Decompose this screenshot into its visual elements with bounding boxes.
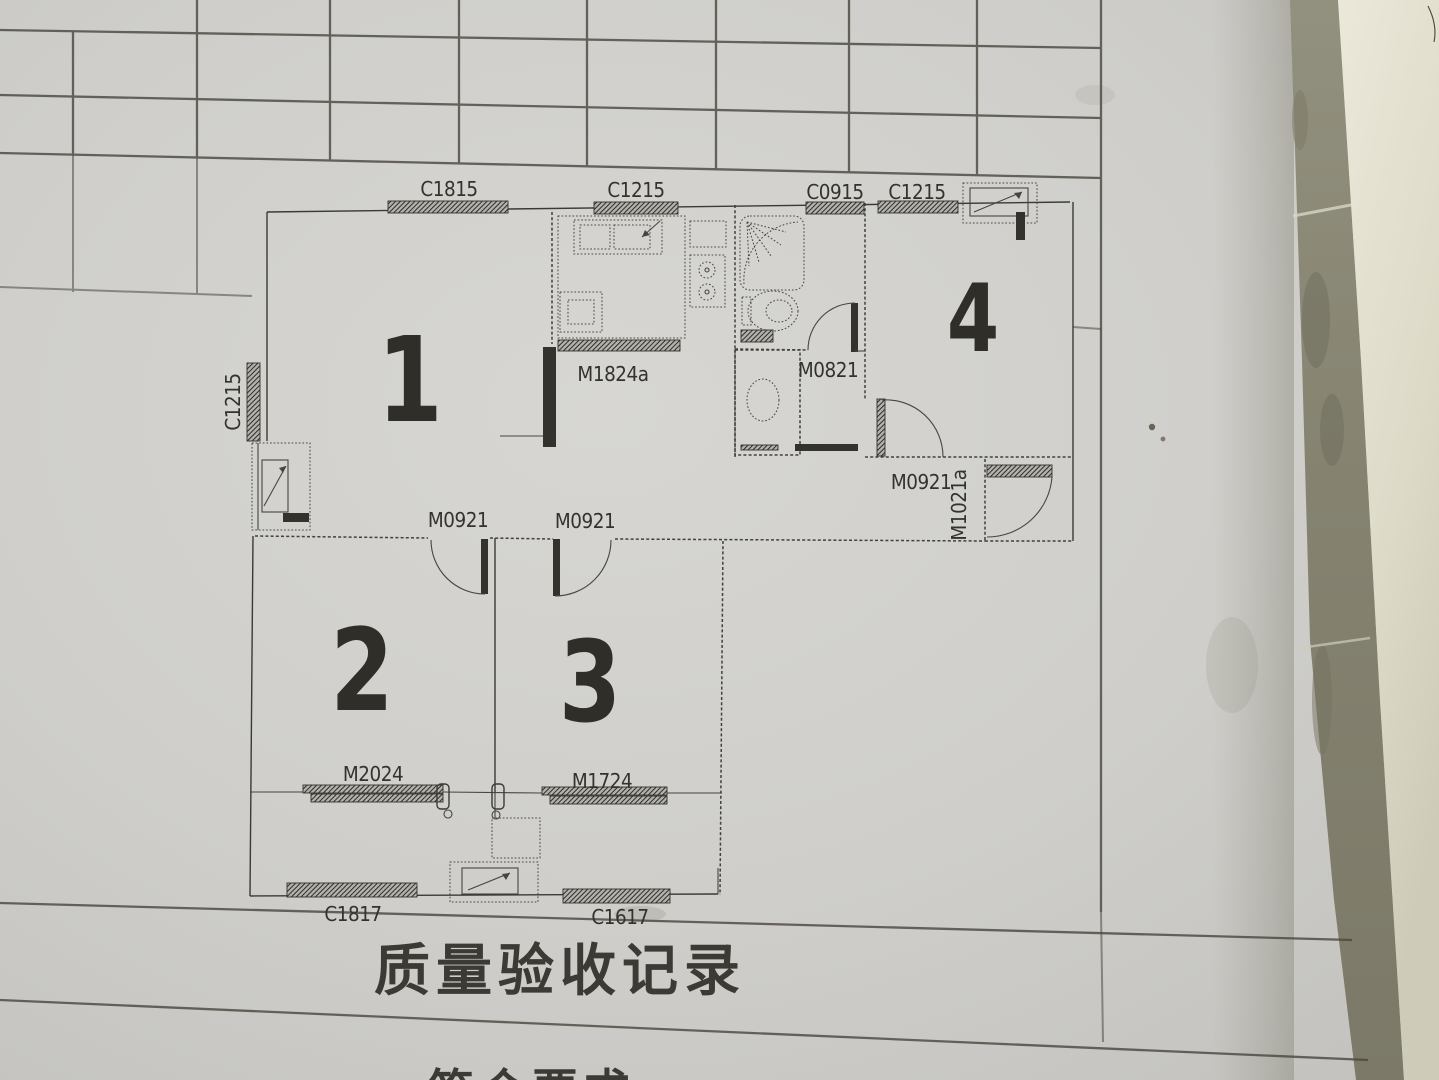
door-label-m0921-room3: M0921	[555, 509, 615, 533]
window-label-c1617: C1617	[591, 905, 648, 929]
room-number-4: 4	[947, 265, 999, 374]
room-number-1: 1	[377, 313, 443, 450]
paper-edge-shadow	[1212, 0, 1294, 1080]
window-band-c1215-left	[247, 363, 260, 441]
door-label-m1824a: M1824a	[577, 362, 648, 386]
hall-wall-segment	[795, 444, 858, 451]
door-label-m0921-room4: M0921	[891, 470, 951, 494]
window-band-c1817	[287, 883, 417, 897]
door-panel-m1824a	[543, 347, 556, 447]
door-label-m0921-room2: M0921	[428, 508, 488, 532]
window-band-c1815	[388, 201, 508, 213]
door-label-m1724: M1724	[572, 769, 633, 793]
window-label-c1215-room4: C1215	[888, 180, 945, 204]
sheet-canvas: C1815 C1215 C0915 C1215 C1215 M1824a M08…	[0, 0, 1439, 1080]
form-bottom-partial-text: 符合要求	[428, 1064, 636, 1080]
door-label-m1021a: M1021a	[947, 469, 971, 540]
sliding-door-m1824a	[558, 340, 680, 351]
room-number-2: 2	[330, 605, 393, 738]
sliding-door-m1724-rail2	[550, 796, 667, 804]
window-label-c1215-left: C1215	[221, 373, 245, 430]
window-band-c1617	[563, 889, 670, 903]
window-label-c0915: C0915	[806, 180, 863, 204]
floor-drain	[741, 330, 773, 342]
photo-of-floor-plan-sheet: C1815 C1215 C0915 C1215 C1215 M1824a M08…	[0, 0, 1439, 1080]
window-label-c1215-kitchen: C1215	[607, 178, 664, 202]
door-label-m2024: M2024	[343, 762, 404, 786]
window-band-c1215-kitchen	[594, 202, 678, 214]
window-label-c1817: C1817	[324, 902, 381, 926]
door-label-m0821: M0821	[798, 358, 858, 382]
room-number-3: 3	[559, 617, 621, 747]
window-label-c1815: C1815	[420, 177, 477, 201]
wash-room-mat	[741, 445, 778, 450]
sliding-door-m2024-rail2	[311, 794, 443, 802]
form-title: 质量验收记录	[374, 939, 746, 1004]
